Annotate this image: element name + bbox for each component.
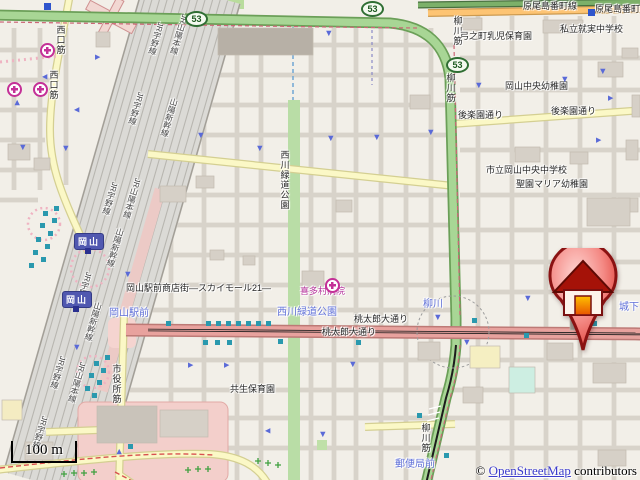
signal-square-icon [54, 206, 59, 211]
railway-line-label: JR宇野線 [127, 91, 144, 126]
oneway-arrow-icon: ▶ [265, 427, 270, 434]
signal-square-icon [29, 263, 34, 268]
signal-square-icon [33, 250, 38, 255]
map-viewport[interactable]: 原尾島番町線原尾島番町線後楽園通り後楽園通り桃太郎大通り桃太郎大通り岡山駅前商店… [0, 0, 640, 480]
oneway-arrow-icon: ▶ [224, 362, 229, 369]
route-shield-53: 53 [446, 57, 469, 73]
station-marker-icon [85, 248, 91, 254]
oneway-arrow-icon: ▶ [197, 133, 204, 138]
signal-square-icon [226, 321, 231, 326]
hospital-icon [7, 82, 22, 97]
signal-square-icon [45, 244, 50, 249]
road-name-label: 桃太郎大通り [354, 315, 408, 324]
hospital-icon [325, 278, 340, 293]
railway-line-label: JR宇野線 [49, 355, 66, 390]
signal-square-icon [48, 231, 53, 236]
signal-square-icon [206, 321, 211, 326]
oneway-arrow-icon: ▶ [373, 135, 380, 140]
oneway-arrow-icon: ▶ [95, 54, 100, 61]
railway-line-label: JR山陽本線 [122, 177, 142, 219]
road-name-label: 後楽園通り [458, 111, 503, 120]
oneway-arrow-icon: ▶ [188, 362, 193, 369]
road-name-label: 原尾島番町線 [595, 5, 640, 14]
signal-square-icon [105, 355, 110, 360]
oneway-arrow-icon: ▶ [62, 146, 69, 151]
signal-square-icon [356, 340, 361, 345]
place-name-label: 弓之町乳児保育園 [460, 32, 532, 41]
signal-square-icon [41, 257, 46, 262]
signal-square-icon [227, 340, 232, 345]
place-name-label: 私立就実中学校 [560, 25, 623, 34]
signal-square-icon [256, 321, 261, 326]
road-name-label: 原尾島番町線 [523, 2, 577, 11]
signal-square-icon [97, 380, 102, 385]
railway-line-label: JR山陽本線 [67, 361, 87, 403]
signal-square-icon [246, 321, 251, 326]
place-name-label: 共生保育園 [230, 385, 275, 394]
scale-bar: 100 m [11, 441, 77, 463]
signal-square-icon [444, 453, 449, 458]
openstreetmap-link[interactable]: OpenStreetMap [489, 463, 571, 478]
road-name-label: 西口筋 [55, 25, 64, 55]
oneway-arrow-icon: ▶ [599, 69, 606, 74]
oneway-arrow-icon: ▶ [561, 77, 568, 82]
oneway-arrow-icon: ▶ [319, 432, 326, 437]
route-shield-53: 53 [185, 11, 208, 27]
signal-square-icon [43, 211, 48, 216]
signal-square-icon [278, 339, 283, 344]
oneway-arrow-icon: ▶ [74, 106, 79, 113]
oneway-arrow-icon: ▶ [256, 146, 263, 151]
road-name-label: 桃太郎大通り [322, 328, 376, 337]
poi-square-icon [588, 9, 595, 16]
tram-stop-label: 郵便局前 [395, 460, 435, 471]
copyright-text: © [475, 463, 488, 478]
oneway-arrow-icon: ▶ [14, 100, 21, 105]
oneway-arrow-icon: ▶ [475, 83, 482, 88]
oneway-arrow-icon: ▶ [463, 340, 470, 345]
railway-line-label: JR宇野線 [147, 21, 164, 56]
road-name-label: 後楽園通り [551, 107, 596, 116]
tram-stop-label: 城下 [619, 303, 639, 314]
oneway-arrow-icon: ▶ [325, 31, 332, 36]
signal-square-icon [166, 321, 171, 326]
oneway-arrow-icon: ▶ [427, 130, 434, 135]
house-marker[interactable] [544, 248, 622, 352]
oneway-arrow-icon: ▶ [434, 315, 441, 320]
oneway-arrow-icon: ▶ [596, 137, 601, 144]
oneway-arrow-icon: ▶ [124, 272, 131, 277]
signal-square-icon [101, 368, 106, 373]
oneway-arrow-icon: ▶ [42, 73, 47, 80]
signal-square-icon [36, 237, 41, 242]
hospital-icon [40, 43, 55, 58]
place-name-label: 聖園マリア幼稚園 [516, 180, 588, 189]
tram-stop-label: 柳川 [423, 300, 443, 311]
oneway-arrow-icon: ▶ [608, 95, 613, 102]
signal-square-icon [89, 373, 94, 378]
poi-square-icon [44, 3, 51, 10]
signal-square-icon [236, 321, 241, 326]
road-name-label: 柳川筋 [420, 423, 429, 453]
signal-square-icon [215, 340, 220, 345]
road-name-label: 柳川筋 [445, 73, 454, 103]
railway-line-label: 山陽新幹線 [105, 227, 124, 268]
signal-square-icon [417, 413, 422, 418]
signal-square-icon [472, 318, 477, 323]
place-name-label: 岡山中央幼稚園 [505, 82, 568, 91]
oneway-arrow-icon: ▶ [327, 136, 334, 141]
signal-square-icon [203, 340, 208, 345]
road-name-label: 西口筋 [48, 70, 57, 100]
signal-square-icon [94, 361, 99, 366]
map-labels-layer: 原尾島番町線原尾島番町線後楽園通り後楽園通り桃太郎大通り桃太郎大通り岡山駅前商店… [0, 0, 640, 480]
attribution: © OpenStreetMap contributors [475, 463, 637, 479]
signal-square-icon [524, 333, 529, 338]
route-shield-53: 53 [361, 1, 384, 17]
tram-stop-label: 西川緑道公園 [277, 308, 337, 319]
road-name-label: 市役所筋 [111, 364, 120, 404]
contributors-text: contributors [571, 463, 637, 478]
place-name-label: 市立岡山中央中学校 [486, 166, 567, 175]
oneway-arrow-icon: ▶ [73, 345, 80, 350]
signal-square-icon [266, 321, 271, 326]
oneway-arrow-icon: ▶ [349, 362, 356, 367]
signal-square-icon [128, 444, 133, 449]
signal-square-icon [92, 393, 97, 398]
oneway-arrow-icon: ▶ [524, 296, 531, 301]
railway-line-label: JR宇野線 [101, 181, 118, 216]
signal-square-icon [40, 223, 45, 228]
railway-line-label: 山陽新幹線 [159, 97, 178, 138]
signal-square-icon [52, 218, 57, 223]
hospital-icon [33, 82, 48, 97]
tram-stop-label: 岡山駅前 [109, 309, 149, 320]
house-door-icon [575, 296, 591, 315]
signal-square-icon [85, 386, 90, 391]
road-name-label: 岡山駅前商店街―スカイモール21― [126, 284, 271, 293]
road-name-label: 西川緑道公園 [279, 150, 288, 210]
station-marker-icon [73, 306, 79, 312]
oneway-arrow-icon: ▶ [116, 449, 123, 454]
oneway-arrow-icon: ▶ [19, 145, 26, 150]
signal-square-icon [216, 321, 221, 326]
